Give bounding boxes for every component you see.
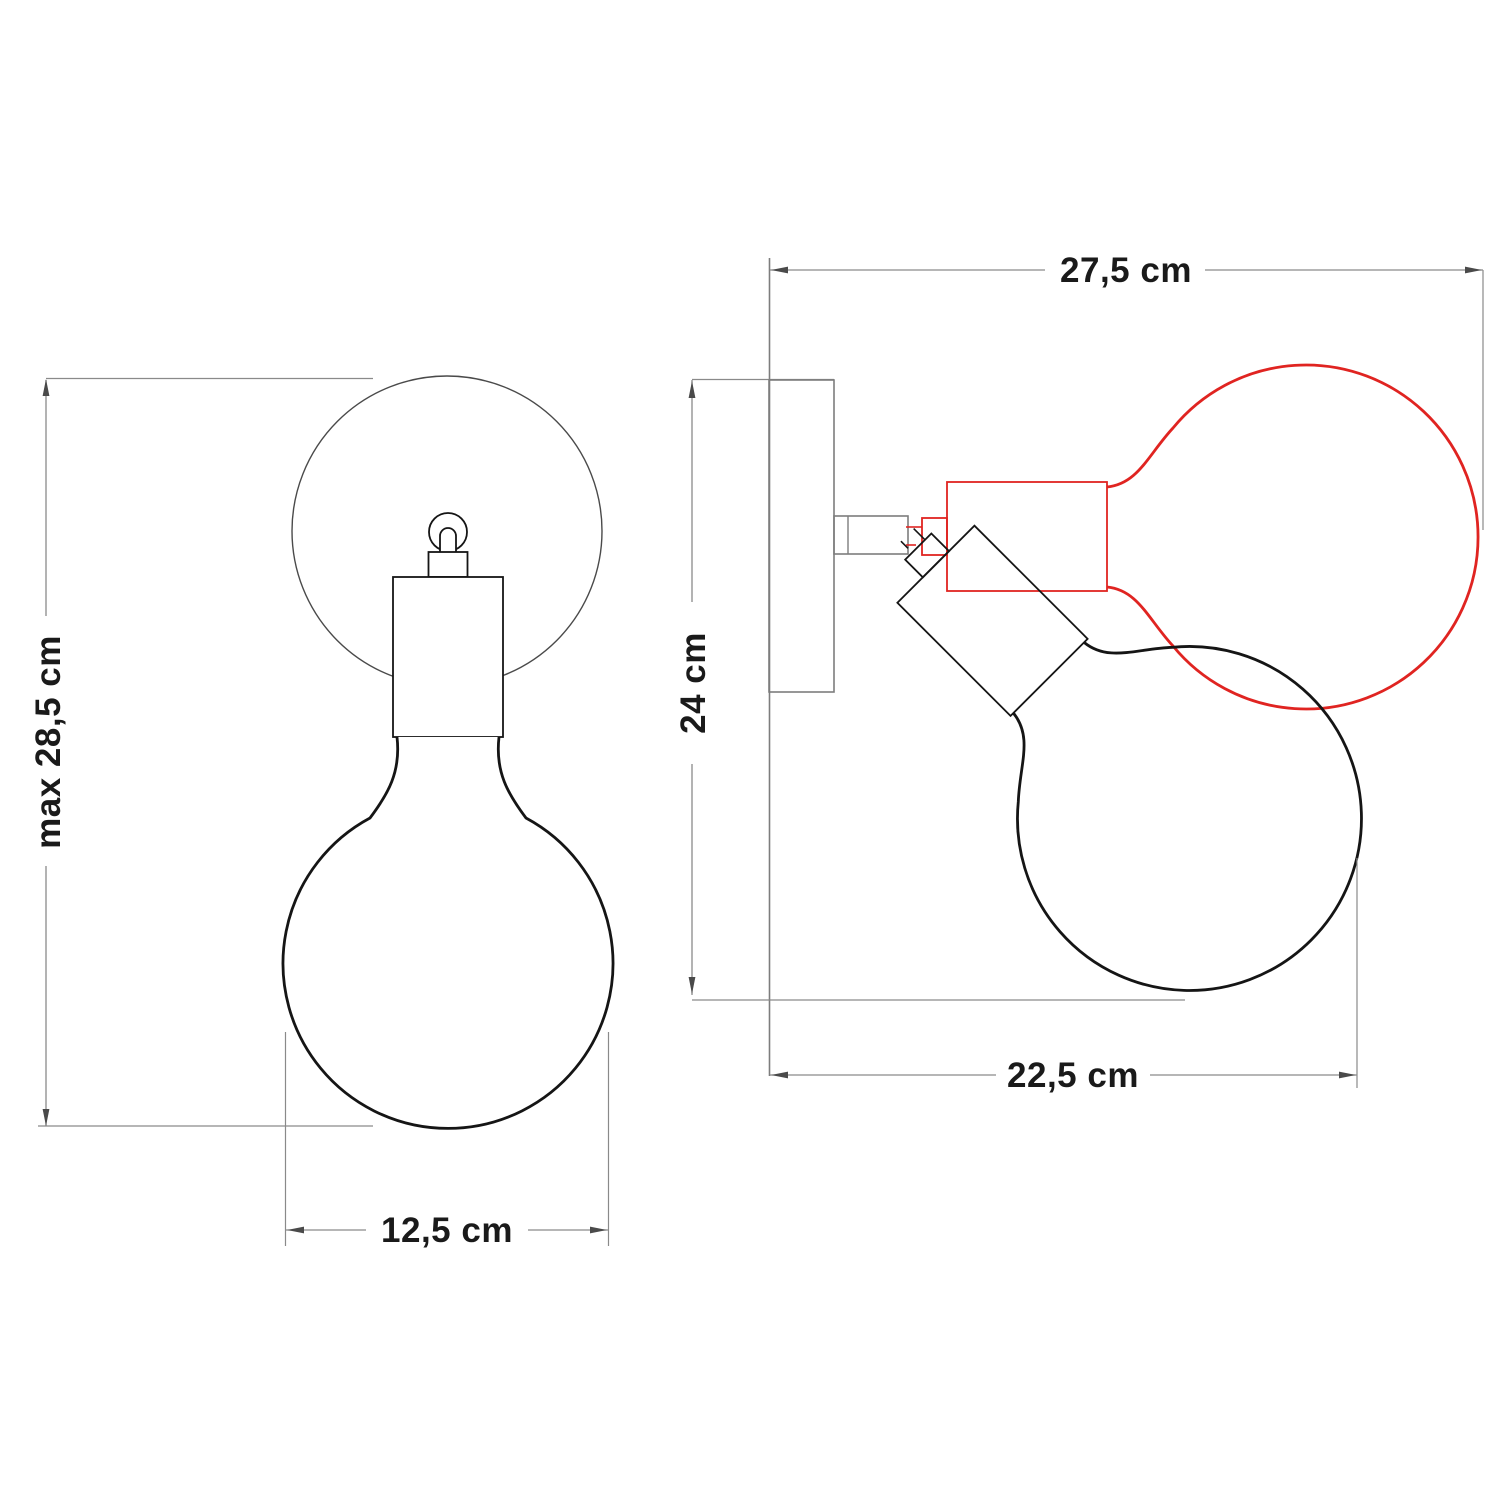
side-height-label: 24 cm [674, 632, 713, 734]
dimension-side-total: 27,5 cm [770, 251, 1483, 530]
wall-lamp-dimension-drawing: max 28,5 cm 12,5 cm 27, [0, 0, 1500, 1500]
lamp-holder-front [393, 577, 503, 737]
front-height-label: max 28,5 cm [29, 635, 68, 849]
wall-plate-side [769, 380, 834, 692]
side-depth-label: 22,5 cm [1007, 1056, 1139, 1095]
front-view: max 28,5 cm 12,5 cm [29, 376, 613, 1250]
dimension-side-depth: 22,5 cm [770, 858, 1357, 1095]
dimension-side-height: 24 cm [674, 380, 1185, 1000]
front-width-label: 12,5 cm [381, 1211, 513, 1250]
mounting-arm [834, 516, 908, 554]
side-total-label: 27,5 cm [1060, 251, 1192, 290]
socket-collar-front [429, 552, 468, 577]
ring-arch [440, 528, 456, 553]
globe-bulb-front [283, 737, 613, 1128]
side-view: 27,5 cm 24 cm 22,5 cm [674, 251, 1483, 1095]
lamp-assembly-alt-position [906, 365, 1478, 709]
lamp-assembly-angled [785, 414, 1433, 1062]
